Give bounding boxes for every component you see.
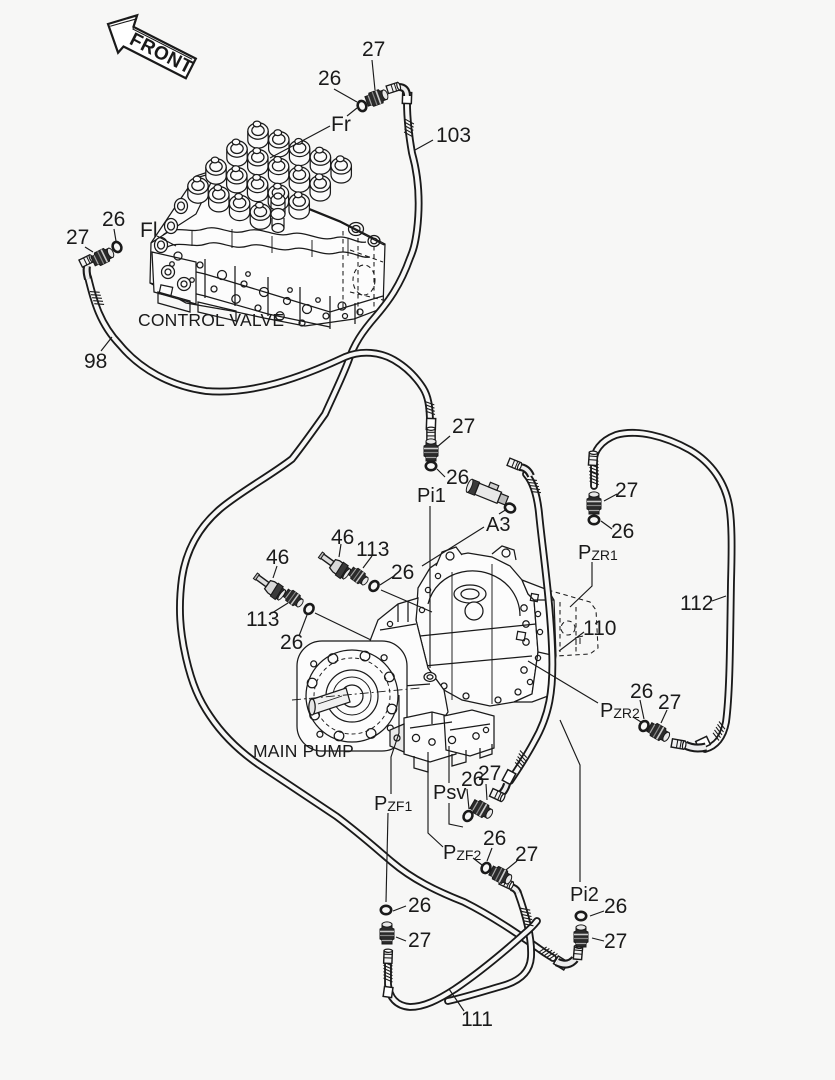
svg-text:103: 103 xyxy=(436,124,471,147)
svg-text:26: 26 xyxy=(604,895,627,918)
svg-text:Pi2: Pi2 xyxy=(570,884,599,906)
svg-text:26: 26 xyxy=(446,466,469,489)
svg-text:Pi1: Pi1 xyxy=(417,485,446,507)
svg-text:26: 26 xyxy=(630,680,653,703)
svg-text:Fl: Fl xyxy=(140,219,158,242)
svg-text:27: 27 xyxy=(362,38,385,61)
svg-text:110: 110 xyxy=(583,617,616,640)
svg-text:111: 111 xyxy=(461,1008,493,1031)
svg-text:26: 26 xyxy=(280,631,303,654)
svg-text:27: 27 xyxy=(408,929,431,952)
svg-text:CONTROL VALVE: CONTROL VALVE xyxy=(138,310,284,330)
svg-text:98: 98 xyxy=(84,350,107,373)
svg-text:26: 26 xyxy=(408,894,431,917)
svg-text:46: 46 xyxy=(331,526,354,549)
svg-text:26: 26 xyxy=(611,520,634,543)
svg-text:26: 26 xyxy=(102,208,125,231)
svg-text:27: 27 xyxy=(604,930,627,953)
svg-text:Fr: Fr xyxy=(331,113,351,136)
svg-text:MAIN PUMP: MAIN PUMP xyxy=(253,741,354,761)
svg-text:113: 113 xyxy=(356,538,389,561)
svg-text:26: 26 xyxy=(483,827,506,850)
svg-text:27: 27 xyxy=(478,762,501,785)
svg-text:27: 27 xyxy=(615,479,638,502)
svg-text:27: 27 xyxy=(452,415,475,438)
svg-text:26: 26 xyxy=(391,561,414,584)
svg-text:26: 26 xyxy=(318,67,341,90)
svg-text:113: 113 xyxy=(246,608,279,631)
svg-text:27: 27 xyxy=(515,843,538,866)
svg-text:27: 27 xyxy=(66,226,89,249)
svg-text:46: 46 xyxy=(266,546,289,569)
svg-text:27: 27 xyxy=(658,691,681,714)
svg-text:A3: A3 xyxy=(486,514,510,536)
svg-text:112: 112 xyxy=(680,592,713,615)
